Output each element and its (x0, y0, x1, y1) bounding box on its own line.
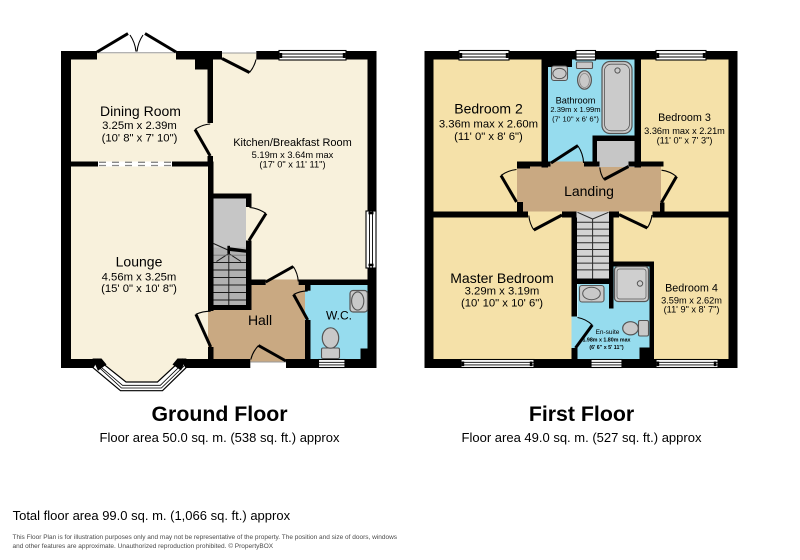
svg-text:W.C.: W.C. (326, 309, 352, 323)
svg-text:(15' 0" x 10' 8"): (15' 0" x 10' 8") (101, 283, 177, 295)
svg-text:Hall: Hall (248, 312, 272, 328)
svg-text:Bedroom 4: Bedroom 4 (665, 283, 718, 295)
svg-text:Bedroom 2: Bedroom 2 (454, 101, 523, 117)
svg-text:(7' 10" x 6' 6"): (7' 10" x 6' 6") (552, 115, 599, 124)
svg-text:5.19m x 3.64m max: 5.19m x 3.64m max (252, 150, 334, 160)
svg-text:(17' 0" x 11' 11"): (17' 0" x 11' 11") (259, 160, 325, 170)
svg-text:(11' 0" x 7' 3"): (11' 0" x 7' 3") (657, 136, 713, 146)
svg-text:(10' 10" x 10' 6"): (10' 10" x 10' 6") (461, 298, 543, 310)
svg-text:Dining Room: Dining Room (100, 103, 181, 119)
svg-text:First Floor: First Floor (529, 402, 634, 426)
svg-text:3.36m max x 2.60m: 3.36m max x 2.60m (439, 119, 538, 131)
svg-text:1.98m x 1.80m max: 1.98m x 1.80m max (582, 338, 630, 344)
svg-text:Lounge: Lounge (116, 254, 163, 270)
svg-text:(10' 8" x 7' 10"): (10' 8" x 7' 10") (102, 133, 178, 145)
svg-text:(6' 6" x 5' 11"): (6' 6" x 5' 11") (589, 345, 624, 351)
svg-text:and other features are approxi: and other features are approximate. Unau… (13, 542, 274, 550)
svg-text:2.39m x 1.99m: 2.39m x 1.99m (550, 105, 600, 114)
svg-text:4.56m x 3.25m: 4.56m x 3.25m (102, 272, 177, 284)
svg-text:Landing: Landing (564, 183, 614, 199)
svg-text:En-suite: En-suite (596, 329, 620, 336)
svg-text:Kitchen/Breakfast Room: Kitchen/Breakfast Room (233, 137, 352, 149)
svg-text:3.25m x 2.39m: 3.25m x 2.39m (102, 120, 177, 132)
svg-text:3.36m max x 2.21m: 3.36m max x 2.21m (644, 126, 725, 136)
svg-text:3.29m x 3.19m: 3.29m x 3.19m (465, 286, 540, 298)
svg-text:Master Bedroom: Master Bedroom (450, 270, 553, 286)
svg-text:Total floor area 99.0 sq. m. (: Total floor area 99.0 sq. m. (1,066 sq. … (13, 508, 291, 523)
svg-text:(11' 9" x 8' 7"): (11' 9" x 8' 7") (664, 305, 720, 315)
svg-text:Bathroom: Bathroom (556, 96, 596, 106)
svg-text:Floor area 50.0 sq. m. (538 sq: Floor area 50.0 sq. m. (538 sq. ft.) app… (100, 430, 340, 445)
svg-text:Ground Floor: Ground Floor (151, 402, 287, 426)
svg-text:(11' 0" x 8' 6"): (11' 0" x 8' 6") (454, 131, 523, 143)
svg-text:Bedroom 3: Bedroom 3 (658, 112, 711, 124)
svg-text:Floor area 49.0 sq. m. (527 sq: Floor area 49.0 sq. m. (527 sq. ft.) app… (462, 430, 702, 445)
svg-text:This Floor Plan is for illustr: This Floor Plan is for illustration purp… (13, 534, 398, 541)
